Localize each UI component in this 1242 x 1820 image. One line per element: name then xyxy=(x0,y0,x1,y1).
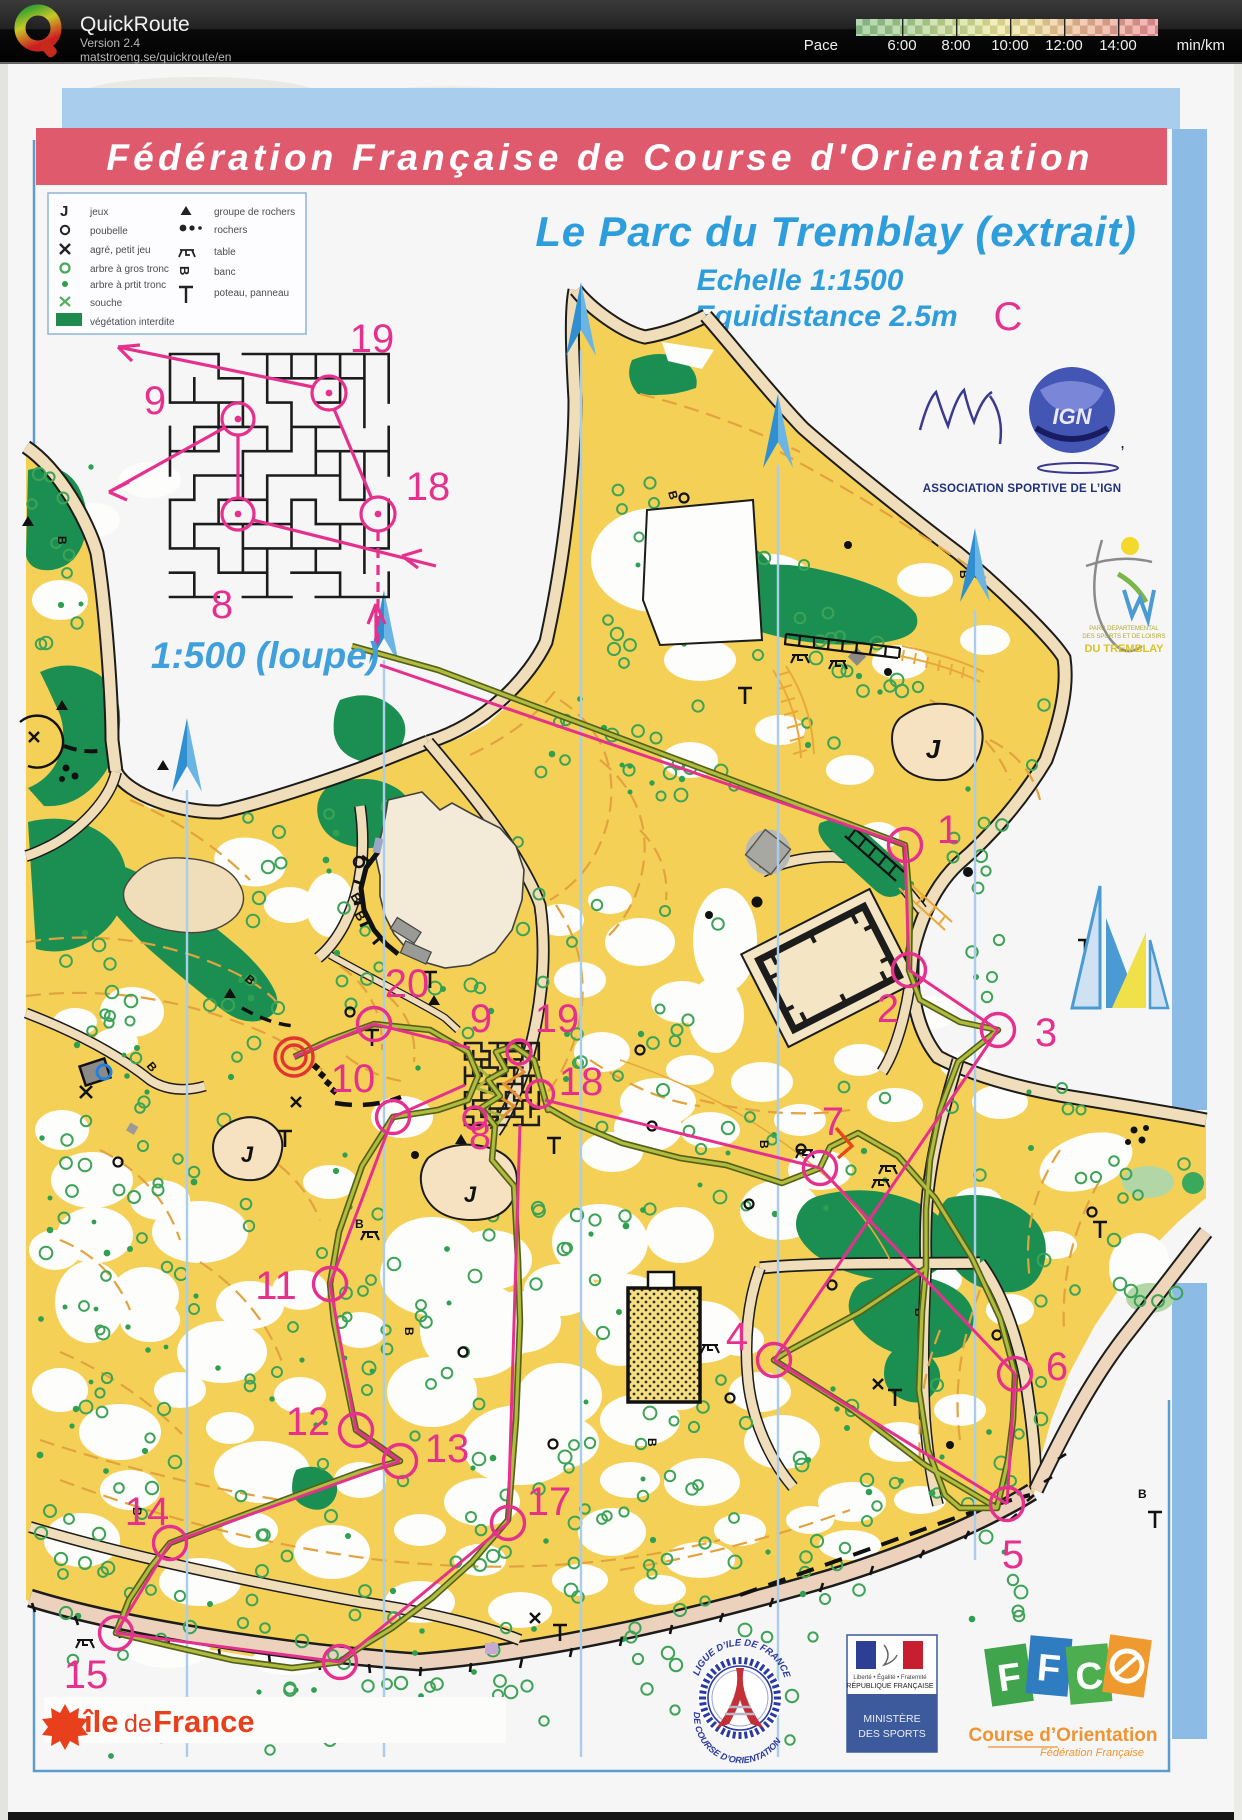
svg-text:de: de xyxy=(124,1710,152,1738)
svg-text:J: J xyxy=(241,1142,254,1167)
svg-text:B: B xyxy=(55,536,69,545)
svg-text:12: 12 xyxy=(286,1400,331,1444)
svg-text:J: J xyxy=(464,1182,477,1207)
svg-text:8: 8 xyxy=(469,1114,491,1158)
svg-text:19: 19 xyxy=(535,997,580,1041)
svg-text:C: C xyxy=(1074,1655,1105,1699)
svg-text:1: 1 xyxy=(937,808,959,852)
svg-text:poteau, panneau: poteau, panneau xyxy=(214,288,289,299)
svg-text:,: , xyxy=(1120,432,1125,452)
svg-text:banc: banc xyxy=(214,267,236,278)
svg-text:10: 10 xyxy=(331,1057,376,1101)
svg-text:île: île xyxy=(82,1704,118,1739)
svg-text:8:00: 8:00 xyxy=(941,37,970,54)
svg-text:France: France xyxy=(153,1704,255,1739)
svg-text:7: 7 xyxy=(822,1100,844,1144)
svg-text:6:00: 6:00 xyxy=(887,37,916,54)
svg-text:Le Parc du Tremblay (extrait): Le Parc du Tremblay (extrait) xyxy=(535,208,1136,255)
svg-text:groupe de rochers: groupe de rochers xyxy=(214,207,295,218)
svg-text:5: 5 xyxy=(1002,1533,1024,1577)
svg-text:arbre à prtit tronc: arbre à prtit tronc xyxy=(90,280,166,291)
svg-text:rochers: rochers xyxy=(214,225,247,236)
svg-text:11: 11 xyxy=(255,1264,297,1308)
svg-text:B: B xyxy=(402,1327,416,1336)
svg-text:RÉPUBLIQUE FRANÇAISE: RÉPUBLIQUE FRANÇAISE xyxy=(846,1681,933,1690)
svg-text:QuickRoute: QuickRoute xyxy=(80,13,190,36)
svg-text:Pace: Pace xyxy=(804,37,838,54)
svg-text:14: 14 xyxy=(125,1490,170,1534)
svg-text:DU TREMBLAY: DU TREMBLAY xyxy=(1084,643,1164,655)
svg-text:table: table xyxy=(214,247,236,258)
svg-text:18: 18 xyxy=(406,465,451,509)
svg-text:B: B xyxy=(757,1140,771,1149)
svg-text:DES SPORTS ET DE LOISIRS: DES SPORTS ET DE LOISIRS xyxy=(1082,634,1165,640)
svg-text:19: 19 xyxy=(350,317,395,361)
svg-text:8: 8 xyxy=(211,583,233,627)
svg-text:Fédération Française: Fédération Française xyxy=(1040,1747,1144,1759)
svg-text:Course d’Orientation: Course d’Orientation xyxy=(969,1725,1158,1746)
svg-text:18: 18 xyxy=(559,1060,604,1104)
svg-text:3: 3 xyxy=(1035,1011,1057,1055)
svg-text:B: B xyxy=(1138,1487,1147,1501)
svg-text:B: B xyxy=(645,1438,659,1447)
svg-text:12:00: 12:00 xyxy=(1045,37,1083,54)
svg-text:4: 4 xyxy=(726,1315,748,1359)
svg-text:14:00: 14:00 xyxy=(1099,37,1137,54)
svg-text:Fédération Française de Course: Fédération Française de Course d'Orienta… xyxy=(106,137,1093,178)
svg-text:végétation interdite: végétation interdite xyxy=(90,317,175,328)
svg-text:15: 15 xyxy=(64,1653,109,1697)
svg-text:souche: souche xyxy=(90,298,123,309)
svg-text:B: B xyxy=(355,1217,364,1231)
svg-text:20: 20 xyxy=(385,962,430,1006)
svg-text:jeux: jeux xyxy=(89,207,108,218)
svg-text:Version 2.4: Version 2.4 xyxy=(80,36,140,50)
svg-text:agré, petit jeu: agré, petit jeu xyxy=(90,245,151,256)
svg-text:min/km: min/km xyxy=(1177,37,1225,54)
svg-text:ASSOCIATION SPORTIVE DE L’I: ASSOCIATION SPORTIVE DE L’IGN xyxy=(923,483,1122,495)
svg-text:matstroeng.se/quickroute/en: matstroeng.se/quickroute/en xyxy=(80,50,231,64)
svg-text:2: 2 xyxy=(877,987,899,1031)
svg-text:J: J xyxy=(60,203,68,220)
svg-text:6: 6 xyxy=(1046,1345,1068,1389)
svg-text:J: J xyxy=(926,734,941,764)
svg-text:Echelle 1:1500: Echelle 1:1500 xyxy=(697,264,904,297)
svg-text:1:500 (loupe): 1:500 (loupe) xyxy=(151,635,379,676)
svg-text:9: 9 xyxy=(470,997,492,1041)
svg-text:Liberté • Égalité • Fraternité: Liberté • Égalité • Fraternité xyxy=(853,1674,927,1681)
svg-text:IGN: IGN xyxy=(1052,404,1092,429)
svg-text:9: 9 xyxy=(144,379,166,423)
svg-text:B: B xyxy=(177,266,192,275)
svg-text:C: C xyxy=(994,295,1023,339)
svg-text:PARC DEPARTEMENTAL: PARC DEPARTEMENTAL xyxy=(1089,626,1159,632)
svg-text:17: 17 xyxy=(527,1480,572,1524)
svg-text:MINISTÈRE: MINISTÈRE xyxy=(863,1712,920,1725)
svg-text:F: F xyxy=(1035,1647,1062,1691)
svg-text:10:00: 10:00 xyxy=(991,37,1029,54)
svg-text:Equidistance 2.5m: Equidistance 2.5m xyxy=(694,300,957,333)
svg-text:DES SPORTS: DES SPORTS xyxy=(858,1728,926,1740)
svg-text:poubelle: poubelle xyxy=(90,226,128,237)
svg-text:13: 13 xyxy=(425,1427,470,1471)
svg-text:arbre à gros tronc: arbre à gros tronc xyxy=(90,264,169,275)
